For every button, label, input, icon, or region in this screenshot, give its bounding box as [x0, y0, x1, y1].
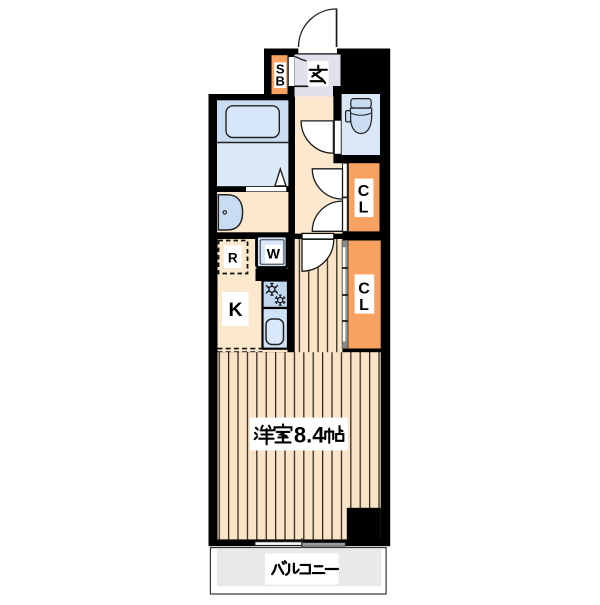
svg-text:L: L — [359, 200, 369, 217]
svg-text:R: R — [228, 250, 238, 265]
svg-text:W: W — [267, 246, 281, 262]
svg-text:C: C — [358, 183, 370, 200]
svg-text:L: L — [359, 297, 369, 314]
svg-text:K: K — [229, 299, 243, 321]
svg-text:8.4: 8.4 — [294, 423, 325, 448]
svg-text:C: C — [358, 280, 370, 297]
svg-text:B: B — [276, 74, 285, 89]
